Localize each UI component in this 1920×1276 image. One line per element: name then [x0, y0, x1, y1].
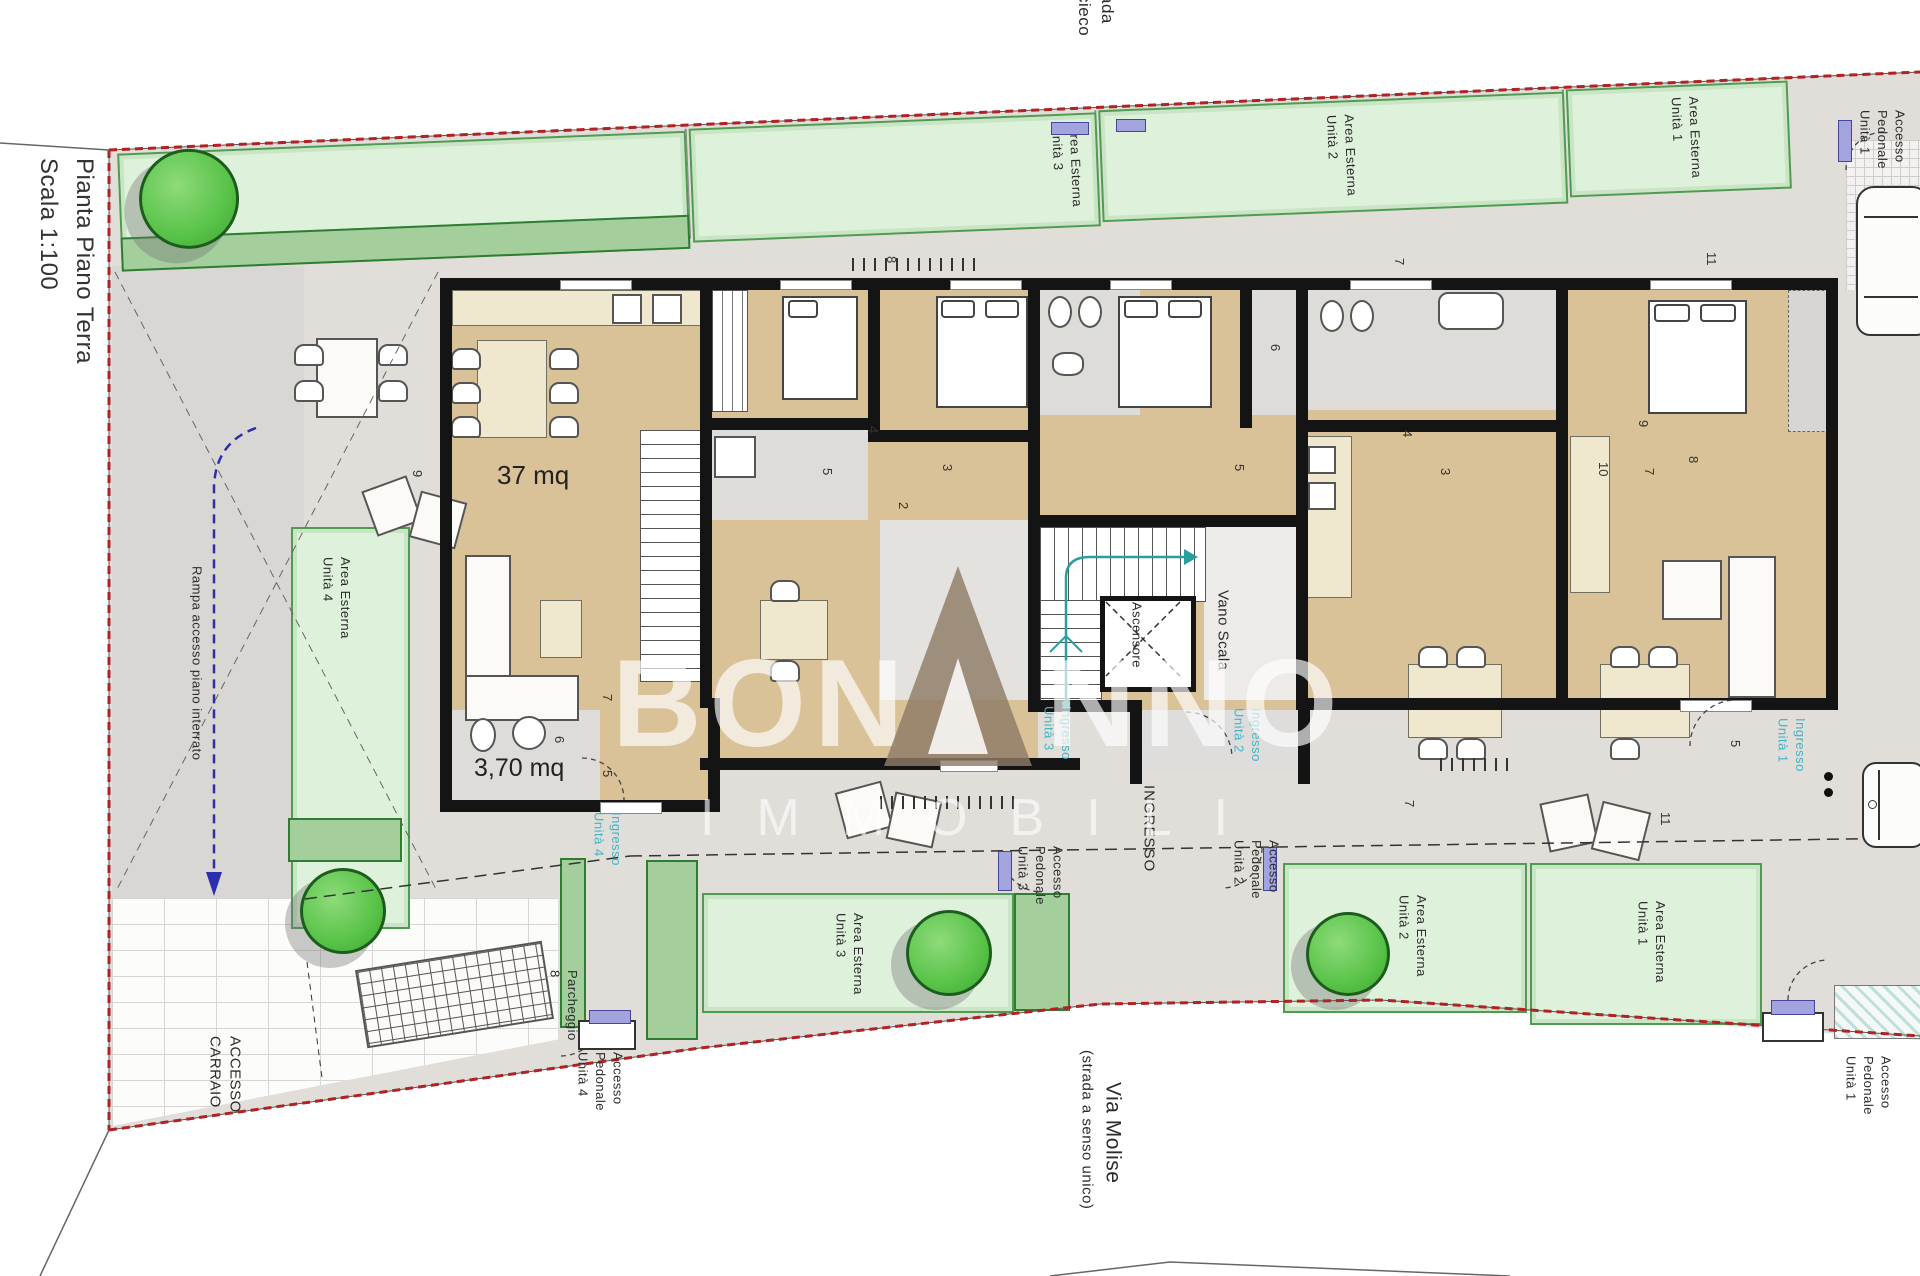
dim: 4 — [1400, 430, 1415, 437]
dim: 11 — [1658, 812, 1673, 826]
ingresso-unit2-label: Ingresso Unità 2 — [1230, 708, 1265, 762]
dim: 9 — [1636, 420, 1651, 427]
gate-box-unit4 — [578, 1020, 636, 1050]
dim: 7 — [1392, 258, 1407, 265]
pedonale-unit1-bottom-label: Accesso Pedonale Unità 1 — [1842, 1056, 1895, 1115]
dim: 3 — [1438, 468, 1453, 475]
gate-top-a — [1051, 122, 1089, 135]
dim: 6 — [552, 736, 567, 743]
pedonale-unit4-label: Accesso Pedonale Unità 4 — [574, 1052, 627, 1111]
living-area-label: 37 mq — [497, 460, 569, 491]
dim: 8 — [1686, 456, 1701, 463]
gate-unit1-bottom — [1771, 1000, 1815, 1015]
gate-unit3 — [998, 851, 1012, 891]
rear-window — [1864, 296, 1918, 298]
pedonale-unit1-top-label: Accesso Pedonale Unità 1 — [1856, 110, 1909, 169]
plan-title-line2: Scala 1:100 — [35, 158, 62, 290]
dim: 10 — [1596, 462, 1611, 476]
gate-top-right — [1838, 120, 1852, 162]
plan-title: Pianta Piano Terra Scala 1:100 — [30, 158, 102, 364]
car-bottom-right — [1862, 762, 1920, 848]
dim: 3 — [940, 464, 955, 471]
ingresso-unit1-label: Ingresso Unità 1 — [1774, 718, 1809, 772]
dim: 7 — [1642, 468, 1657, 475]
windshield — [1864, 216, 1918, 218]
mirror-dot — [1868, 800, 1877, 809]
street-bottom-name: Via Molise — [1098, 1082, 1126, 1184]
dim: 11 — [1704, 252, 1719, 266]
dim: 9 — [410, 470, 425, 477]
dim: 5 — [600, 770, 615, 777]
boundary-red — [109, 72, 1920, 1130]
ingresso-unit3-label: Ingresso Unità 3 — [1040, 706, 1075, 760]
gate-top-b — [1116, 119, 1146, 132]
floor-plan-canvas: Area Esterna Unità 3 Area Esterna Unità … — [0, 0, 1920, 1276]
plan-linework — [0, 0, 1920, 1276]
dim: 2 — [896, 502, 911, 509]
ingresso-main-label: INGRESSO — [1138, 785, 1158, 872]
ascensore-label: Ascensore — [1128, 602, 1146, 668]
dim: 5 — [1728, 740, 1743, 747]
vano-scala-label: Vano Scala — [1212, 590, 1232, 671]
pedonale-unit3-label: Accesso Pedonale Unità 3 — [1014, 846, 1067, 905]
dot — [1824, 788, 1833, 797]
stair-arrow — [1066, 557, 1186, 702]
car-top-right — [1856, 186, 1920, 336]
dim: 7 — [1402, 800, 1417, 807]
street-top-fragment: ada cieco — [1072, 0, 1118, 36]
bath-area-label: 3,70 mq — [474, 754, 564, 783]
gate-unit4 — [589, 1010, 631, 1024]
dim: 5 — [820, 468, 835, 475]
gate-box-unit1 — [1762, 1012, 1824, 1042]
dim: 8 — [884, 256, 899, 263]
pedonale-unit2-label: Accesso Pedonale Unità 2 — [1230, 840, 1283, 899]
parcheggio-label: Parcheggio 8 — [546, 970, 581, 1041]
plan-title-line1: Pianta Piano Terra — [71, 158, 98, 364]
dim: 4 — [866, 426, 881, 433]
dot — [1824, 772, 1833, 781]
accesso-carraio-label: ACCESSO CARRAIO — [204, 1036, 245, 1113]
street-bottom-note: (strada a senso unico) — [1076, 1050, 1096, 1209]
rampa-label: Rampa accesso piano interrato — [188, 566, 206, 760]
dim: 5 — [1232, 464, 1247, 471]
dim: 7 — [600, 694, 615, 701]
ramp-arrow — [214, 428, 256, 874]
windshield — [1878, 770, 1880, 840]
dim: 6 — [1268, 344, 1283, 351]
ingresso-unit4-label: Ingresso Unità 4 — [590, 812, 625, 866]
